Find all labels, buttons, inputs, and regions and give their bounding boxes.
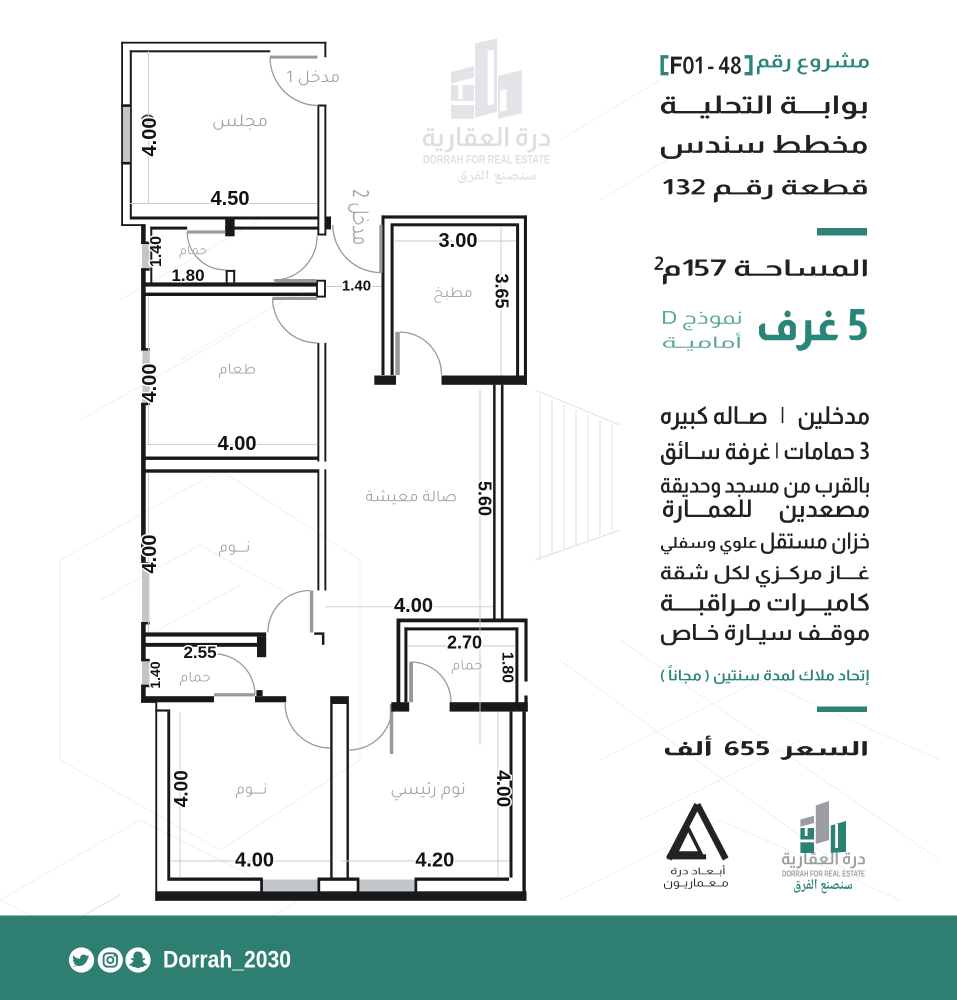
svg-text:1.40: 1.40 — [342, 277, 371, 294]
svg-text:1.40: 1.40 — [148, 236, 165, 267]
svg-text:4.00: 4.00 — [235, 850, 274, 872]
svg-text:2.70: 2.70 — [447, 632, 482, 652]
svg-text:2.55: 2.55 — [183, 643, 216, 662]
svg-text:1.40: 1.40 — [147, 661, 163, 688]
svg-text:4.00: 4.00 — [394, 595, 433, 617]
svg-text:1.80: 1.80 — [498, 652, 515, 683]
svg-text:5.60: 5.60 — [474, 481, 494, 516]
svg-text:4.20: 4.20 — [415, 850, 454, 872]
svg-text:4.00: 4.00 — [492, 770, 513, 807]
svg-text:4.50: 4.50 — [211, 188, 250, 210]
svg-text:4.00: 4.00 — [139, 118, 161, 157]
svg-text:DORRAH FOR REAL ESTATE: DORRAH FOR REAL ESTATE — [782, 870, 865, 879]
svg-text:4.00: 4.00 — [172, 770, 193, 807]
svg-text:1.80: 1.80 — [171, 266, 204, 285]
svg-text:DORRAH FOR REAL ESTATE: DORRAH FOR REAL ESTATE — [423, 153, 550, 167]
svg-text:4.00: 4.00 — [218, 433, 257, 455]
svg-text:4.00: 4.00 — [139, 535, 161, 574]
svg-text:3.00: 3.00 — [439, 230, 478, 252]
svg-text:3.65: 3.65 — [491, 273, 511, 308]
svg-text:4.00: 4.00 — [139, 364, 161, 403]
svg-text:Dorrah_2030: Dorrah_2030 — [163, 947, 291, 974]
